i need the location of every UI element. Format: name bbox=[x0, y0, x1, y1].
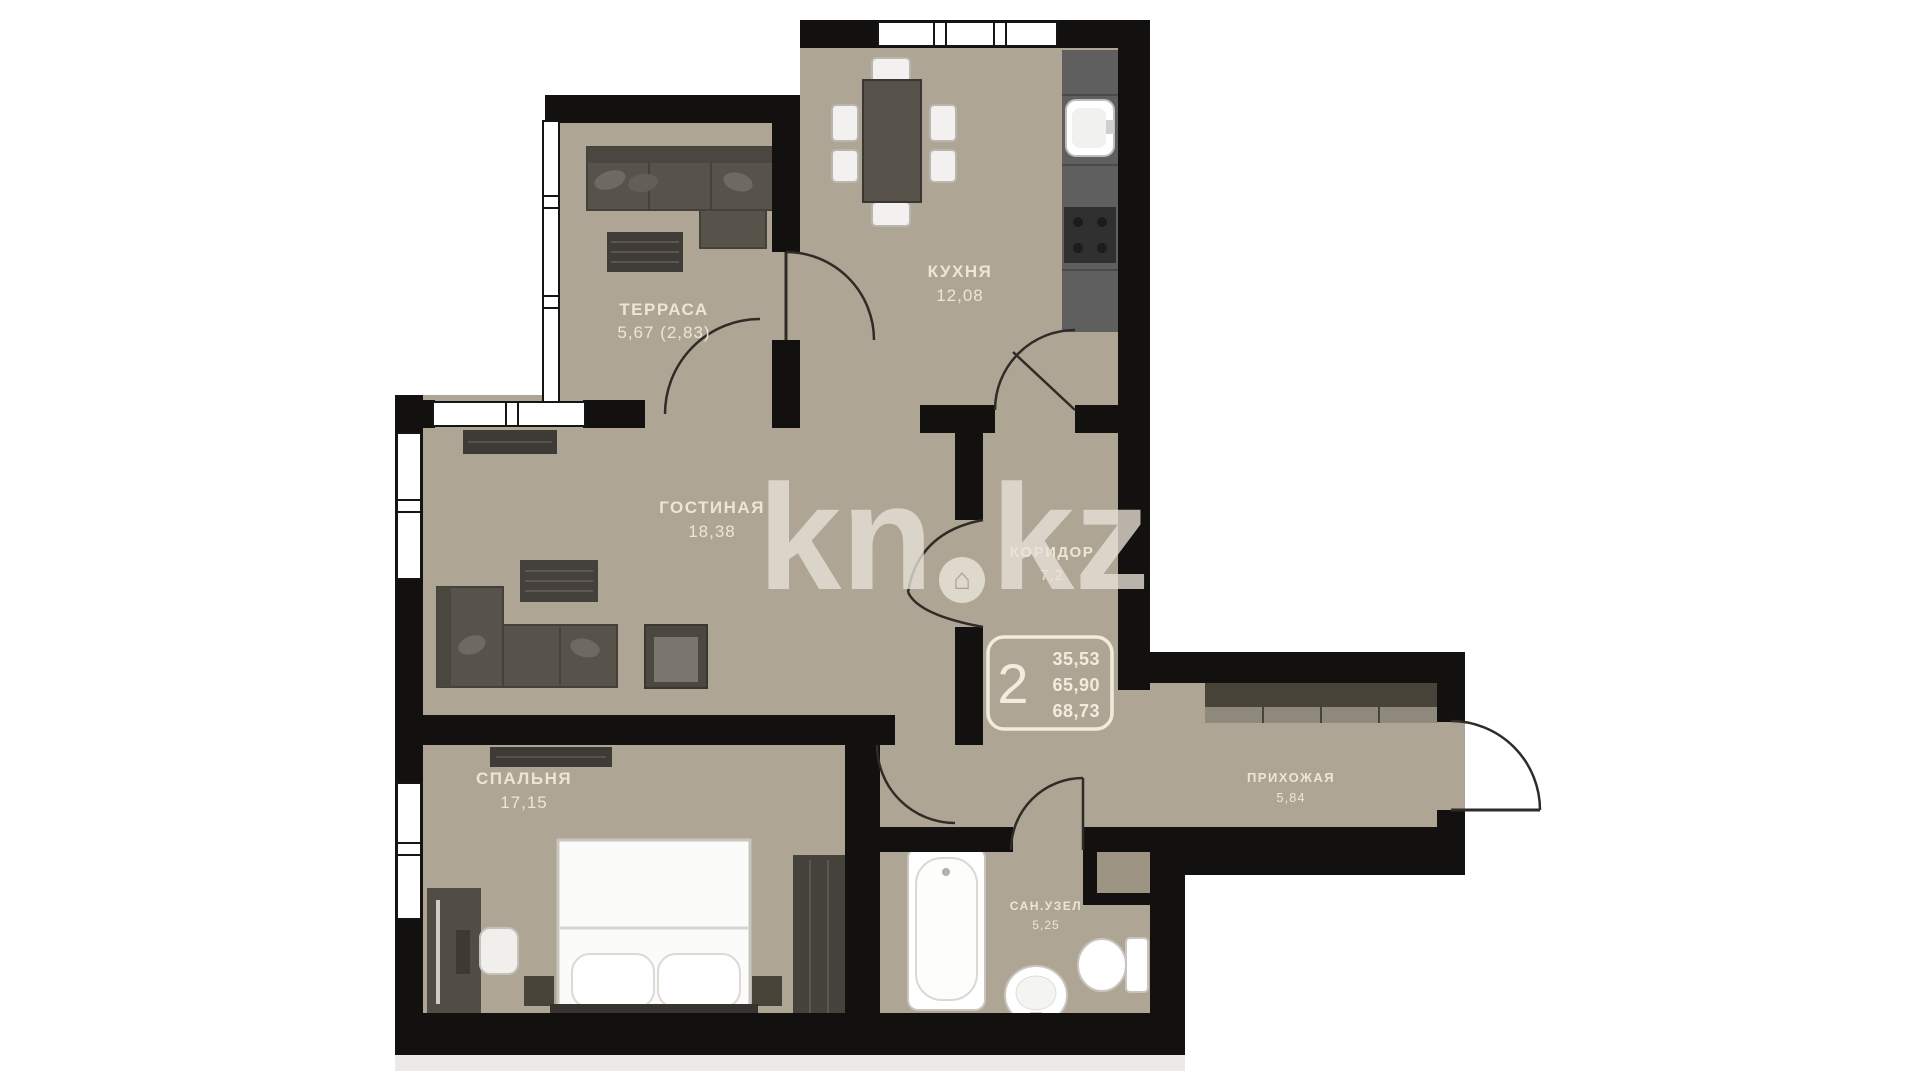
room-label-kitchen: КУХНЯ bbox=[928, 262, 993, 281]
room-area-corridor: 7,2 bbox=[1040, 567, 1064, 584]
kitchen-sink bbox=[1066, 100, 1114, 156]
wall-corridor-top-b bbox=[1075, 405, 1118, 433]
shadow-strip bbox=[395, 1055, 1185, 1071]
room-area-hallway: 5,84 bbox=[1276, 790, 1305, 805]
room-area-bedroom: 17,15 bbox=[500, 793, 548, 812]
bedroom-wardrobe bbox=[793, 855, 845, 1031]
floor-plan: ТЕРРАСА 5,67 (2,83) КУХНЯ 12,08 ГОСТИНАЯ… bbox=[0, 0, 1920, 1080]
room-label-hallway: ПРИХОЖАЯ bbox=[1247, 770, 1335, 785]
room-area-living: 18,38 bbox=[688, 522, 736, 541]
living-armchair bbox=[645, 625, 707, 688]
wall-bedroom-right bbox=[845, 745, 880, 1015]
room-area-kitchen: 12,08 bbox=[936, 286, 984, 305]
info-area-living: 35,53 bbox=[1052, 649, 1100, 669]
wall-living-top-b bbox=[583, 400, 645, 428]
living-top-window bbox=[433, 402, 585, 426]
info-area-usable: 65,90 bbox=[1052, 675, 1100, 695]
wall-terrace-right-lower bbox=[772, 340, 800, 428]
wall-bathroom-top-a bbox=[880, 827, 1013, 852]
bedroom-left-window bbox=[397, 783, 421, 919]
room-area-terrace: 5,67 (2,83) bbox=[617, 323, 710, 342]
kitchen-window bbox=[878, 22, 1057, 46]
living-tv-console bbox=[463, 430, 557, 454]
kitchen-stove bbox=[1064, 207, 1116, 263]
wall-bedroom-top bbox=[423, 715, 895, 745]
wall-kitchen-right bbox=[1118, 20, 1150, 690]
bedroom-tv-console bbox=[490, 747, 612, 767]
room-label-living: ГОСТИНАЯ bbox=[659, 498, 765, 517]
wall-bottom bbox=[395, 1013, 1185, 1055]
room-label-bedroom: СПАЛЬНЯ bbox=[476, 769, 572, 788]
wall-corridor-west-lower bbox=[955, 627, 983, 745]
living-coffee-table bbox=[520, 560, 598, 602]
room-label-bathroom: САН.УЗЕЛ bbox=[1010, 899, 1082, 913]
info-rooms-count: 2 bbox=[997, 652, 1028, 715]
wall-terrace-right-upper bbox=[772, 123, 800, 252]
wall-corridor-west-upper bbox=[955, 428, 983, 520]
room-area-bathroom: 5,25 bbox=[1032, 918, 1059, 932]
room-label-corridor: КОРИДОР bbox=[1010, 544, 1094, 561]
wall-bathroom-alcove-b bbox=[1083, 893, 1150, 905]
hallway-wardrobe bbox=[1205, 681, 1437, 723]
wall-bathroom-top-b bbox=[1083, 827, 1150, 852]
floor-plan-page: ТЕРРАСА 5,67 (2,83) КУХНЯ 12,08 ГОСТИНАЯ… bbox=[0, 0, 1920, 1080]
living-left-window bbox=[397, 433, 421, 579]
bed bbox=[524, 840, 782, 1022]
bathtub bbox=[908, 848, 985, 1010]
room-label-terrace: ТЕРРАСА bbox=[619, 300, 708, 319]
wall-hallway-right-upper bbox=[1437, 652, 1465, 722]
wall-terrace-top bbox=[545, 95, 800, 123]
wall-hallway-bottom bbox=[1150, 827, 1465, 875]
terrace-table bbox=[607, 232, 683, 272]
toilet bbox=[1078, 938, 1148, 992]
wall-hallway-top bbox=[1150, 652, 1465, 683]
info-area-total: 68,73 bbox=[1052, 701, 1100, 721]
terrace-glazing bbox=[543, 121, 559, 402]
kitchen-counter bbox=[1062, 50, 1118, 332]
